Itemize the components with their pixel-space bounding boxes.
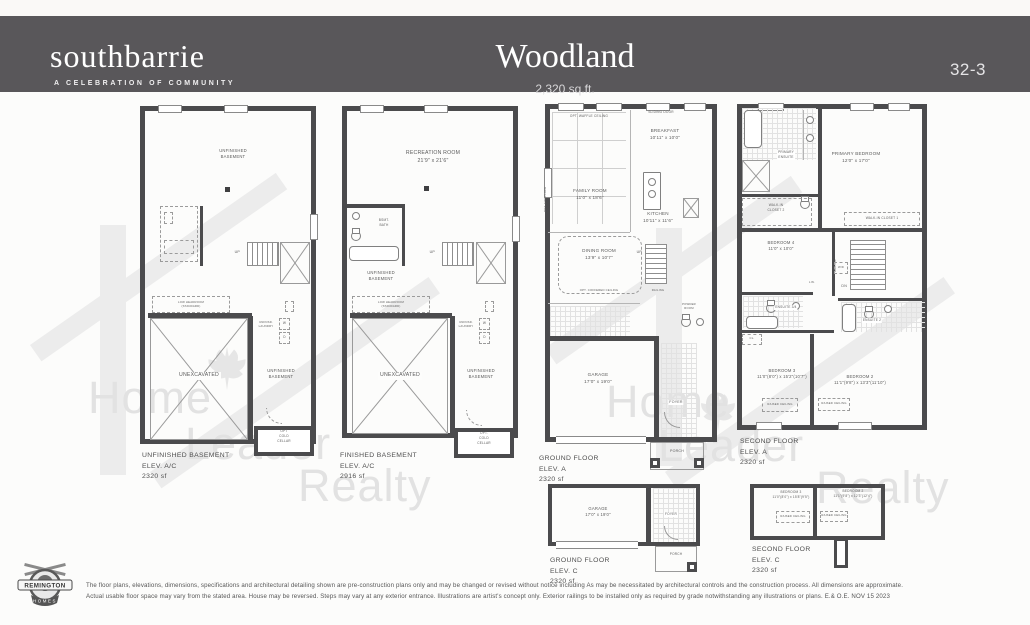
washer-label: W — [283, 321, 286, 326]
bathtub — [744, 110, 762, 148]
community-logo: southbarrie — [50, 38, 205, 75]
stairs — [645, 244, 667, 284]
wall-segment — [248, 316, 253, 444]
chimney-extension — [834, 538, 848, 568]
room-label-garage: GARAGE 17'0" x 19'0" — [585, 506, 611, 519]
cross-hatch-area — [280, 242, 310, 284]
partition-line — [548, 303, 640, 304]
logo-text-remington: REMINGTON — [24, 583, 65, 590]
porch-pillar — [687, 562, 697, 572]
room-label-basement-side: UNFINISHED BASEMENT — [467, 368, 495, 381]
wall-segment — [741, 292, 813, 295]
cold-cellar-label: OPT COLD CELLAR — [277, 429, 291, 443]
header-bar: southbarrie A CELEBRATION OF COMMUNITY W… — [0, 16, 1030, 92]
vanity-line — [803, 110, 804, 160]
room-label-bedroom4: BEDROOM 4 11'0" x 10'0" — [768, 240, 795, 253]
community-tagline: A CELEBRATION OF COMMUNITY — [54, 80, 235, 87]
room-label-wic2: WALK-IN CLOSET 2 — [768, 203, 785, 213]
wall-segment — [741, 330, 834, 333]
toilet — [766, 300, 774, 311]
waffle-ceiling-label: OPT. WAFFLE CEILING — [570, 114, 608, 119]
porch-pillar — [650, 458, 660, 468]
room-label-primary-ensuite: PRIMARY ENSUITE — [777, 150, 795, 160]
room-label-family: FAMILY ROOM 11'0" x 18'6" — [573, 188, 607, 202]
toilet — [681, 314, 689, 325]
partition-line — [630, 110, 631, 232]
room-label-basement-side: UNFINISHED BASEMENT — [267, 368, 295, 381]
window — [224, 105, 248, 113]
toilet — [864, 306, 872, 317]
railing-label: RAILING — [652, 288, 665, 292]
plan-caption: FINISHED BASEMENT ELEV. A/C 2916 sf — [340, 451, 417, 483]
stairs-dn-label: DN — [841, 284, 847, 289]
room-label-bedroom2: BEDROOM 2 11'1"(9'8") x 13'3"(11'10") — [834, 374, 886, 387]
window — [424, 105, 448, 113]
wall-segment — [810, 334, 814, 430]
raised-ceiling-label: RAISED CEILING — [780, 514, 805, 518]
top-margin — [0, 0, 1030, 16]
mudroom-tile — [550, 306, 630, 336]
shower-hatch — [742, 160, 770, 192]
window — [310, 214, 318, 240]
stairs-up-label: UP — [235, 250, 240, 255]
laundry-tub-box — [485, 301, 494, 312]
sink — [806, 134, 814, 142]
partition-line — [548, 232, 630, 233]
wall-segment — [818, 108, 822, 228]
disclaimer-line-1: The floor plans, elevations, dimensions,… — [86, 582, 1024, 589]
room-label-wic1: WALK-IN CLOSET 1 — [866, 216, 899, 221]
window — [512, 216, 520, 242]
window — [850, 103, 874, 111]
window — [360, 105, 384, 113]
model-sqft: 2,320 sq.ft. — [535, 82, 594, 96]
laundry-tub-box — [285, 301, 294, 312]
closet-label: CL. — [750, 336, 755, 340]
plan-caption: SECOND FLOOR ELEV. A 2320 sf — [740, 437, 799, 469]
low-headroom-label: LOW HEADROOM (STANDARD) — [378, 300, 404, 308]
raised-ceiling-label: RAISED CEILING — [767, 402, 792, 406]
room-label-bedroom2: BEDROOM 2 11'1"(9'8") x 12'3"(12'4") — [833, 489, 872, 499]
room-label-basement: UNFINISHED BASEMENT — [219, 148, 247, 161]
window — [888, 103, 910, 111]
room-label-breakfast: BREAKFAST 10'11" x 10'0" — [650, 128, 680, 142]
wall-segment — [450, 316, 455, 438]
raised-ceiling-label: RAISED CEILING — [821, 401, 846, 405]
stairs — [247, 242, 279, 266]
plan-caption: GROUND FLOOR ELEV. A 2320 sf — [539, 454, 599, 486]
room-label-kitchen: KITCHEN 10'11" x 11'6" — [643, 211, 673, 225]
lot-number: 32-3 — [950, 60, 986, 80]
roughin-toilet — [164, 212, 173, 224]
structural-post — [424, 186, 429, 191]
window — [756, 422, 782, 430]
coffered-ceiling-outline — [558, 236, 642, 294]
room-label-garage: GARAGE 17'0" x 19'0" — [584, 372, 612, 386]
room-label-primary-bedroom: PRIMARY BEDROOM 12'0" x 17'0" — [832, 151, 881, 165]
cold-cellar-label: OPT. COLD CELLAR — [477, 431, 491, 445]
raised-ceiling-label: RAISED CEILING — [821, 513, 846, 517]
sink — [352, 212, 360, 220]
wall-segment — [813, 484, 817, 540]
remington-homes-logo: REMINGTON HOMES — [16, 560, 74, 612]
room-label-porch: PORCH — [670, 449, 684, 454]
window — [684, 103, 706, 111]
wall-segment — [346, 204, 404, 208]
sink — [648, 178, 656, 186]
wall-segment — [838, 298, 927, 301]
wall-segment — [654, 336, 659, 442]
room-label-ensuite2: ENSUITE 2 — [862, 318, 882, 323]
plan-caption: UNFINISHED BASEMENT ELEV. A/C 2320 sf — [142, 451, 229, 483]
disclaimer-line-2: Actual usable floor space may vary from … — [86, 593, 1024, 600]
room-label-bedroom3: BEDROOM 3 11'0"(8'0") x 15'8"(9'5") — [772, 490, 809, 500]
stairs — [442, 242, 474, 266]
room-label-ensuite34: ENSUITE 3/4 — [774, 305, 797, 310]
sink — [696, 318, 704, 326]
room-label-foyer: FOYER — [664, 512, 678, 517]
plan-caption: SECOND FLOOR ELEV. C 2320 sf — [752, 545, 811, 577]
room-label-recreation: RECREATION ROOM 21'9" x 21'6" — [406, 150, 460, 166]
bathtub — [349, 246, 399, 261]
window — [158, 105, 182, 113]
sliding-door-label: SLIDING DOOR — [648, 110, 674, 115]
room-label-unexcavated: UNEXCAVATED — [177, 372, 221, 380]
room-label-powder: POWDER ROOM — [682, 302, 696, 310]
room-label-foyer: FOYER — [668, 400, 683, 405]
garage-door — [556, 436, 646, 444]
sink — [648, 190, 656, 198]
laundry-label: UNFNSD. LAUNDRY — [259, 320, 274, 328]
sink — [884, 305, 892, 313]
laundry-label: UNFNSD. LAUNDRY — [459, 320, 474, 328]
wall-segment — [200, 206, 203, 266]
logo-text-homes: HOMES — [33, 598, 57, 603]
wall-segment — [646, 484, 651, 546]
fireplace-label: OPT. FIREPLACE — [543, 187, 547, 212]
structural-post — [225, 187, 230, 192]
dryer-label: D — [483, 335, 486, 340]
wall-segment — [548, 336, 658, 341]
stairs — [850, 240, 886, 290]
bathtub — [746, 316, 778, 329]
room-label-porch: PORCH — [670, 552, 683, 557]
coffered-ceiling-label: OPT. COFFERED CEILING — [580, 288, 619, 292]
toilet — [351, 228, 359, 239]
room-label-bsmt-bath: BSMT. BATH — [379, 218, 389, 228]
linen-label: LIN. — [809, 280, 815, 284]
model-title: Woodland — [496, 38, 635, 76]
window — [558, 103, 584, 111]
washer-dryer-label: W/D — [838, 265, 844, 269]
room-label-unfinished: UNFINISHED BASEMENT — [367, 270, 395, 283]
window — [596, 103, 622, 111]
stairs-up-label: UP — [430, 250, 435, 255]
wall-segment — [402, 204, 405, 266]
garage-door — [556, 541, 638, 549]
bathtub — [842, 304, 856, 332]
roughin-tub — [164, 240, 194, 254]
window — [838, 422, 872, 430]
floorplan-sheet: Home Leader Realty Home Leader Realty so… — [0, 0, 1030, 625]
pantry-hatch — [683, 198, 699, 218]
room-label-dining: DINING ROOM 13'9" x 10'7" — [582, 248, 616, 262]
stairs-up-label: UP — [637, 250, 642, 255]
waffle-ceiling-grid — [552, 112, 626, 224]
cross-hatch-area — [476, 242, 506, 284]
room-label-bedroom3: BEDROOM 3 11'0"(8'0") x 15'2"(10'7") — [757, 368, 807, 381]
sink — [806, 116, 814, 124]
porch-pillar — [694, 458, 704, 468]
room-label-unexcavated: UNEXCAVATED — [378, 372, 422, 380]
low-headroom-label: LOW HEADROOM (STANDARD) — [178, 300, 204, 308]
dryer-label: D — [283, 335, 286, 340]
watermark-chimney-shape — [100, 225, 126, 475]
washer-label: W — [483, 321, 486, 326]
